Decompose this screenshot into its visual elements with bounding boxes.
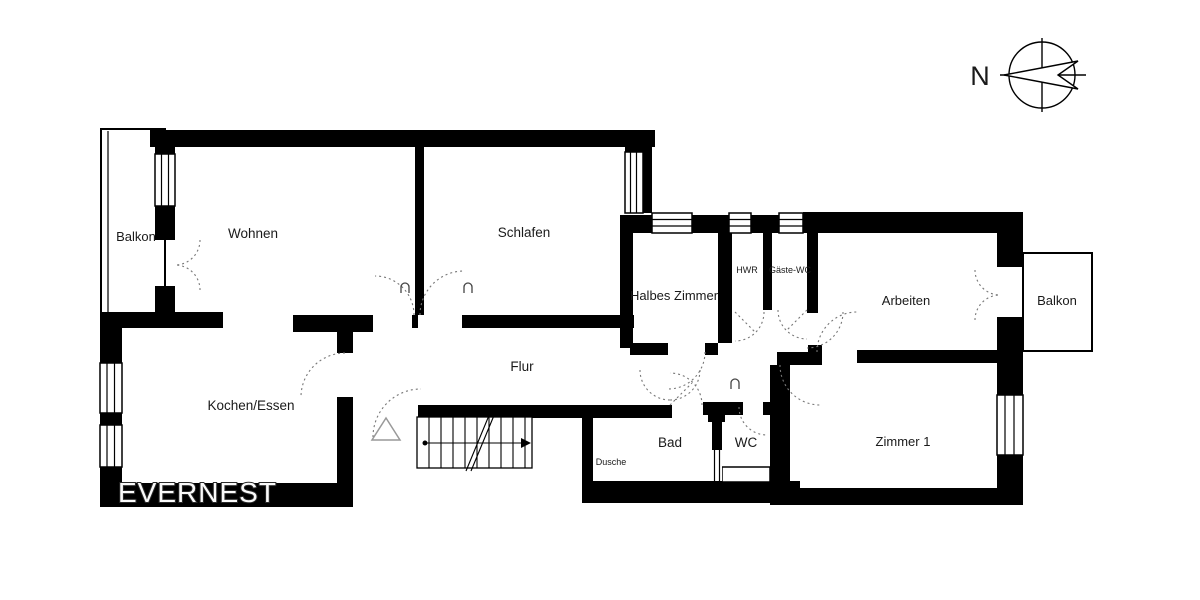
door-balcony-left-wing-bottom	[175, 265, 200, 290]
wall-halbes-bottom-a	[630, 343, 668, 355]
brand-logo: EVERNEST	[118, 477, 277, 508]
window-kitchen-west-2	[100, 425, 122, 467]
walls	[100, 130, 1023, 507]
door-junction-arc-2	[640, 370, 670, 400]
door-bad-leaf	[670, 383, 692, 405]
wall-zimmer1-left	[770, 365, 790, 488]
wall-kitchen-right-a	[337, 322, 353, 353]
door-entry	[373, 389, 421, 437]
window-halbes-north	[652, 213, 692, 233]
wall-stairwell-right	[582, 405, 593, 503]
door-corridor-east	[807, 312, 843, 348]
compass: N	[970, 38, 1086, 112]
wall-wohnen-schlafen-divider	[415, 147, 424, 315]
wall-passage-stub	[808, 345, 822, 365]
door-wohnen	[375, 276, 414, 315]
room-label-gaeste-wc: Gäste-WC	[769, 265, 812, 275]
window-wc-recess	[722, 467, 770, 482]
door-jamb-schlafen	[464, 283, 472, 293]
door-balcony-right-wing-bottom	[975, 295, 1000, 320]
door-gwc-leaf	[786, 310, 807, 331]
room-label-zimmer-1: Zimmer 1	[876, 434, 931, 449]
room-label-bad: Bad	[658, 435, 682, 450]
door-schlafen	[420, 271, 464, 315]
wall-halbes-right	[718, 233, 732, 343]
wall-right-b	[997, 317, 1023, 395]
door-balcony-left-wing-top	[175, 240, 200, 265]
window-gwc-north	[779, 213, 803, 233]
door-wc	[739, 407, 767, 435]
room-label-wc: WC	[735, 435, 758, 450]
wall-kitchen-right-b	[337, 397, 353, 487]
floorplan-page: N Balkon Wohnen Schlafen Halbes Zimmer H…	[0, 0, 1200, 600]
floorplan-svg: N Balkon Wohnen Schlafen Halbes Zimmer H…	[0, 0, 1200, 600]
room-label-halbes-zimmer: Halbes Zimmer	[630, 288, 719, 303]
room-labels: Balkon Wohnen Schlafen Halbes Zimmer HWR…	[116, 225, 1077, 467]
wall-arbeiten-top	[803, 212, 1023, 233]
door-jamb-wc	[731, 379, 739, 389]
wall-flur-bottom	[418, 405, 672, 418]
room-label-wohnen: Wohnen	[228, 226, 278, 241]
wall-schlafen-bottom-b	[462, 315, 634, 328]
room-label-kochen-essen: Kochen/Essen	[207, 398, 294, 413]
wall-gwc-right-foot	[807, 303, 818, 313]
wall-right-a	[997, 233, 1023, 267]
wall-top	[150, 130, 655, 147]
room-label-balkon-left: Balkon	[116, 229, 156, 244]
wall-mid-bottom	[293, 315, 373, 332]
window-wohnen-west	[155, 154, 175, 206]
window-kitchen-west-1	[100, 363, 122, 413]
door-jamb-wohnen	[401, 283, 409, 293]
wall-left-upper-b	[155, 205, 175, 240]
room-label-hwr: HWR	[736, 265, 758, 275]
staircase	[417, 413, 532, 471]
wall-bad-bottom	[582, 481, 800, 503]
compass-north-label: N	[970, 61, 990, 91]
room-label-schlafen: Schlafen	[498, 225, 551, 240]
door-kitchen	[301, 353, 345, 397]
room-label-arbeiten: Arbeiten	[882, 293, 930, 308]
wall-schlafen-bottom-a	[412, 315, 418, 328]
wall-kitchen-left-b	[100, 413, 122, 425]
room-label-balkon-right: Balkon	[1037, 293, 1077, 308]
window-hwr-north	[729, 213, 751, 233]
wall-kitchen-left-a	[100, 322, 122, 363]
door-hwr-leaf	[735, 312, 756, 333]
room-label-dusche: Dusche	[596, 457, 627, 467]
wall-bad-wc-divider	[712, 415, 722, 453]
wall-halbes-bottom-b	[705, 343, 718, 355]
room-label-flur: Flur	[510, 359, 534, 374]
window-zimmer1-east	[997, 395, 1023, 455]
wall-left-upper-a	[155, 130, 175, 157]
wall-zimmer1-bottom	[770, 488, 1023, 505]
window-schlafen-east	[625, 152, 643, 213]
wall-wc-jamb	[763, 402, 770, 415]
wall-schlafen-right-col	[643, 147, 652, 213]
door-balcony-right-wing-top	[975, 270, 1000, 295]
door-bad-wc-slider	[712, 450, 722, 481]
